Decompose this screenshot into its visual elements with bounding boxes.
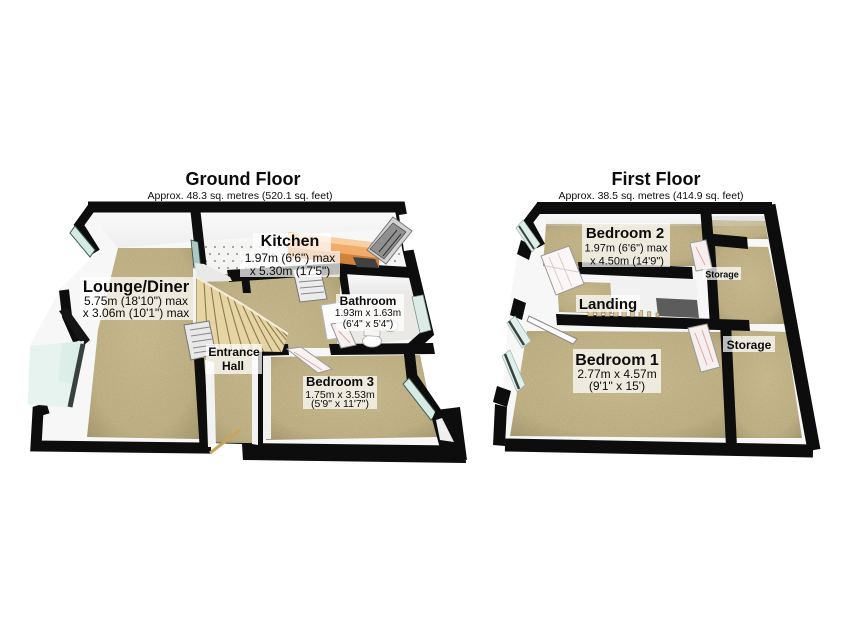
svg-text:(5'9" x 11'7"): (5'9" x 11'7") xyxy=(311,398,369,410)
svg-text:Approx. 48.3 sq. metres (520.1: Approx. 48.3 sq. metres (520.1 sq. feet) xyxy=(147,190,332,202)
svg-text:Storage: Storage xyxy=(727,338,772,352)
svg-text:(9'1" x 15'): (9'1" x 15') xyxy=(589,379,645,393)
svg-text:Approx. 38.5 sq. metres (414.9: Approx. 38.5 sq. metres (414.9 sq. feet) xyxy=(558,190,743,202)
svg-text:x 5.30m (17'5"): x 5.30m (17'5") xyxy=(250,264,331,278)
svg-text:Bedroom 3: Bedroom 3 xyxy=(306,374,374,389)
svg-text:(6'4" x 5'4"): (6'4" x 5'4") xyxy=(343,319,393,330)
svg-text:Bedroom 2: Bedroom 2 xyxy=(586,225,664,242)
svg-text:Kitchen: Kitchen xyxy=(261,233,320,250)
svg-text:Entrance: Entrance xyxy=(208,345,260,359)
svg-text:Storage: Storage xyxy=(705,270,739,280)
svg-text:1.93m x 1.63m: 1.93m x 1.63m xyxy=(335,308,401,319)
svg-text:1.97m (6'6") max: 1.97m (6'6") max xyxy=(245,251,336,265)
svg-text:First Floor: First Floor xyxy=(612,169,701,189)
svg-text:Bathroom: Bathroom xyxy=(340,294,397,308)
svg-text:Landing: Landing xyxy=(579,296,637,313)
svg-text:1.97m (6'6") max: 1.97m (6'6") max xyxy=(584,243,668,255)
svg-text:Ground Floor: Ground Floor xyxy=(186,169,301,189)
svg-text:x 4.50m (14'9"): x 4.50m (14'9") xyxy=(590,256,664,268)
svg-text:x 3.06m (10'1") max: x 3.06m (10'1") max xyxy=(83,306,190,320)
svg-text:Hall: Hall xyxy=(222,359,244,373)
